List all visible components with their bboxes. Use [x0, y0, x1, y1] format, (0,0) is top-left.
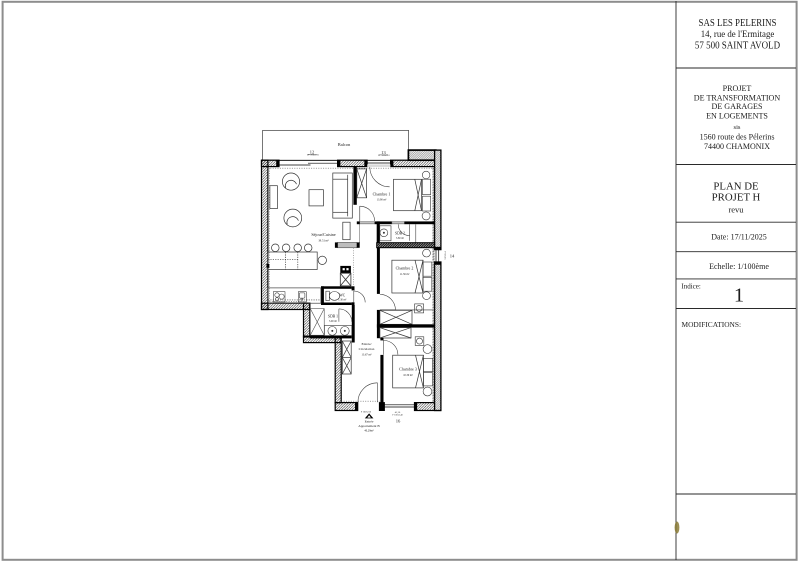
svg-text:MODIFICATIONS:: MODIFICATIONS:	[682, 320, 742, 329]
svg-text:14, rue de l'Ermitage: 14, rue de l'Ermitage	[701, 30, 775, 40]
svg-text:14: 14	[450, 254, 455, 259]
svg-text:40,29m²: 40,29m²	[364, 430, 373, 433]
svg-text:F 100x140: F 100x140	[392, 414, 403, 417]
svg-text:Appartement B: Appartement B	[358, 424, 380, 428]
svg-text:revu: revu	[728, 204, 744, 214]
svg-text:Circulation: Circulation	[359, 347, 375, 351]
svg-text:PROJET: PROJET	[723, 84, 752, 93]
svg-text:F 60x95: F 60x95	[444, 252, 447, 261]
svg-text:10.39 m²: 10.39 m²	[403, 374, 413, 377]
svg-text:Entrée: Entrée	[365, 419, 374, 423]
svg-text:13.67 m²: 13.67 m²	[361, 353, 371, 356]
svg-text:PROJET H: PROJET H	[712, 191, 761, 203]
svg-text:1: 1	[734, 285, 744, 307]
svg-text:PF 100x216: PF 100x216	[378, 154, 390, 157]
svg-text:EN LOGEMENTS: EN LOGEMENTS	[706, 111, 768, 120]
svg-text:DE TRANSFORMATION: DE TRANSFORMATION	[694, 93, 781, 102]
svg-text:SDB 2: SDB 2	[395, 232, 405, 236]
svg-text:11.36 m²: 11.36 m²	[400, 273, 410, 276]
svg-text:Chambre 1: Chambre 1	[373, 192, 391, 197]
svg-text:13.90 m²: 13.90 m²	[377, 199, 387, 202]
svg-text:39.51 m²: 39.51 m²	[318, 239, 328, 243]
svg-text:DE GARAGES: DE GARAGES	[711, 102, 762, 111]
svg-text:Chambre 3: Chambre 3	[399, 367, 417, 372]
svg-text:74400 CHAMONIX: 74400 CHAMONIX	[704, 142, 770, 151]
svg-text:Chambre 2: Chambre 2	[396, 266, 414, 271]
svg-text:Indice:: Indice:	[681, 283, 700, 291]
svg-text:1.30 m²: 1.30 m²	[338, 299, 346, 302]
svg-text:57 500 SAINT AVOLD: 57 500 SAINT AVOLD	[695, 41, 781, 52]
svg-text:SDB 1: SDB 1	[328, 315, 338, 319]
svg-text:1560 route des Pélerins: 1560 route des Pélerins	[700, 133, 775, 142]
svg-text:3.90 m²: 3.90 m²	[329, 320, 337, 323]
svg-text:16: 16	[396, 418, 401, 423]
svg-text:P 100x210: P 100x210	[361, 411, 372, 414]
svg-text:SAS LES PELERINS: SAS LES PELERINS	[699, 18, 777, 29]
svg-text:sis: sis	[734, 124, 741, 131]
svg-text:WC: WC	[339, 293, 345, 297]
svg-text:Entrée/: Entrée/	[361, 342, 371, 346]
svg-text:Balcon: Balcon	[338, 142, 351, 147]
svg-text:Echelle: 1/100ème: Echelle: 1/100ème	[709, 262, 769, 271]
svg-text:PF 260x216: PF 260x216	[307, 154, 319, 157]
svg-text:Séjour/Cuisine: Séjour/Cuisine	[311, 232, 336, 237]
svg-text:Date: 17/11/2025: Date: 17/11/2025	[711, 233, 766, 242]
svg-text:3.80 m²: 3.80 m²	[396, 237, 404, 240]
